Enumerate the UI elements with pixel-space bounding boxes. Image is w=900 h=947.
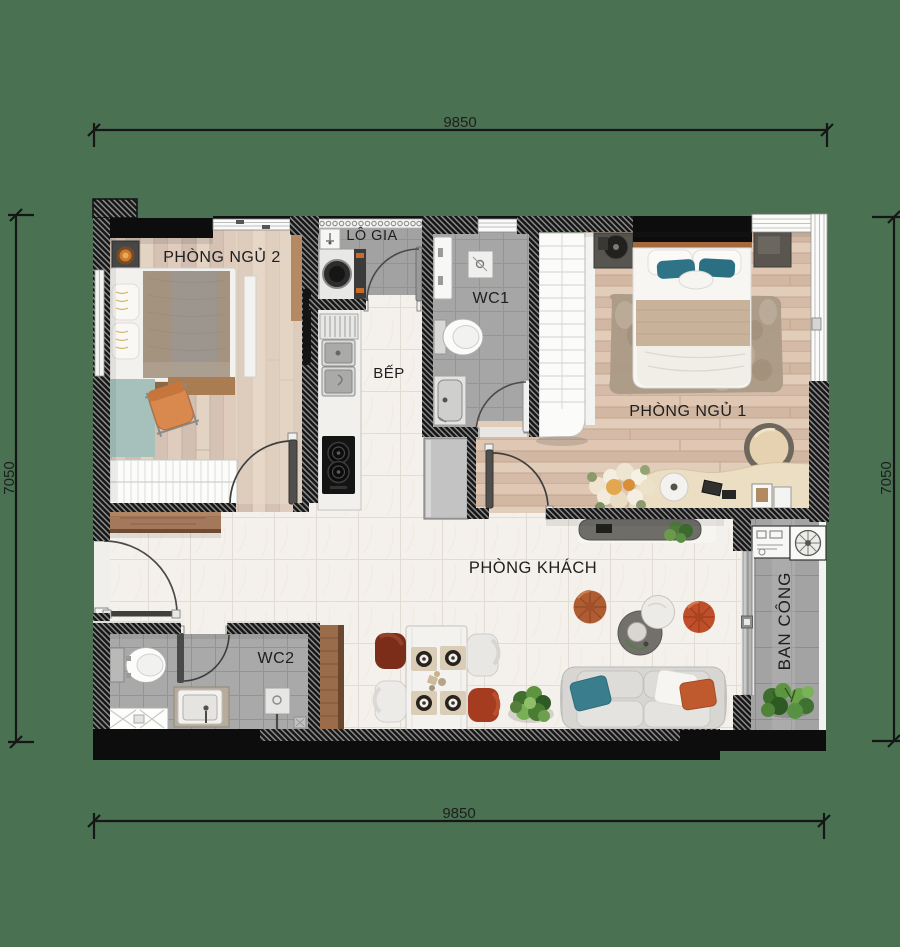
svg-text:BAN CÔNG: BAN CÔNG (775, 572, 794, 671)
svg-text:9850: 9850 (443, 114, 476, 131)
svg-text:9850: 9850 (442, 805, 475, 822)
svg-text:7050: 7050 (878, 461, 895, 494)
svg-text:WC1: WC1 (472, 290, 509, 307)
svg-text:7050: 7050 (1, 461, 18, 494)
svg-text:PHÒNG NGỦ 1: PHÒNG NGỦ 1 (629, 401, 747, 420)
svg-text:BẾP: BẾP (373, 365, 405, 382)
svg-text:WC2: WC2 (257, 650, 294, 667)
svg-text:PHÒNG KHÁCH: PHÒNG KHÁCH (469, 558, 597, 577)
svg-text:PHÒNG NGỦ 2: PHÒNG NGỦ 2 (163, 247, 281, 266)
svg-text:LÔ GIA: LÔ GIA (346, 227, 397, 244)
